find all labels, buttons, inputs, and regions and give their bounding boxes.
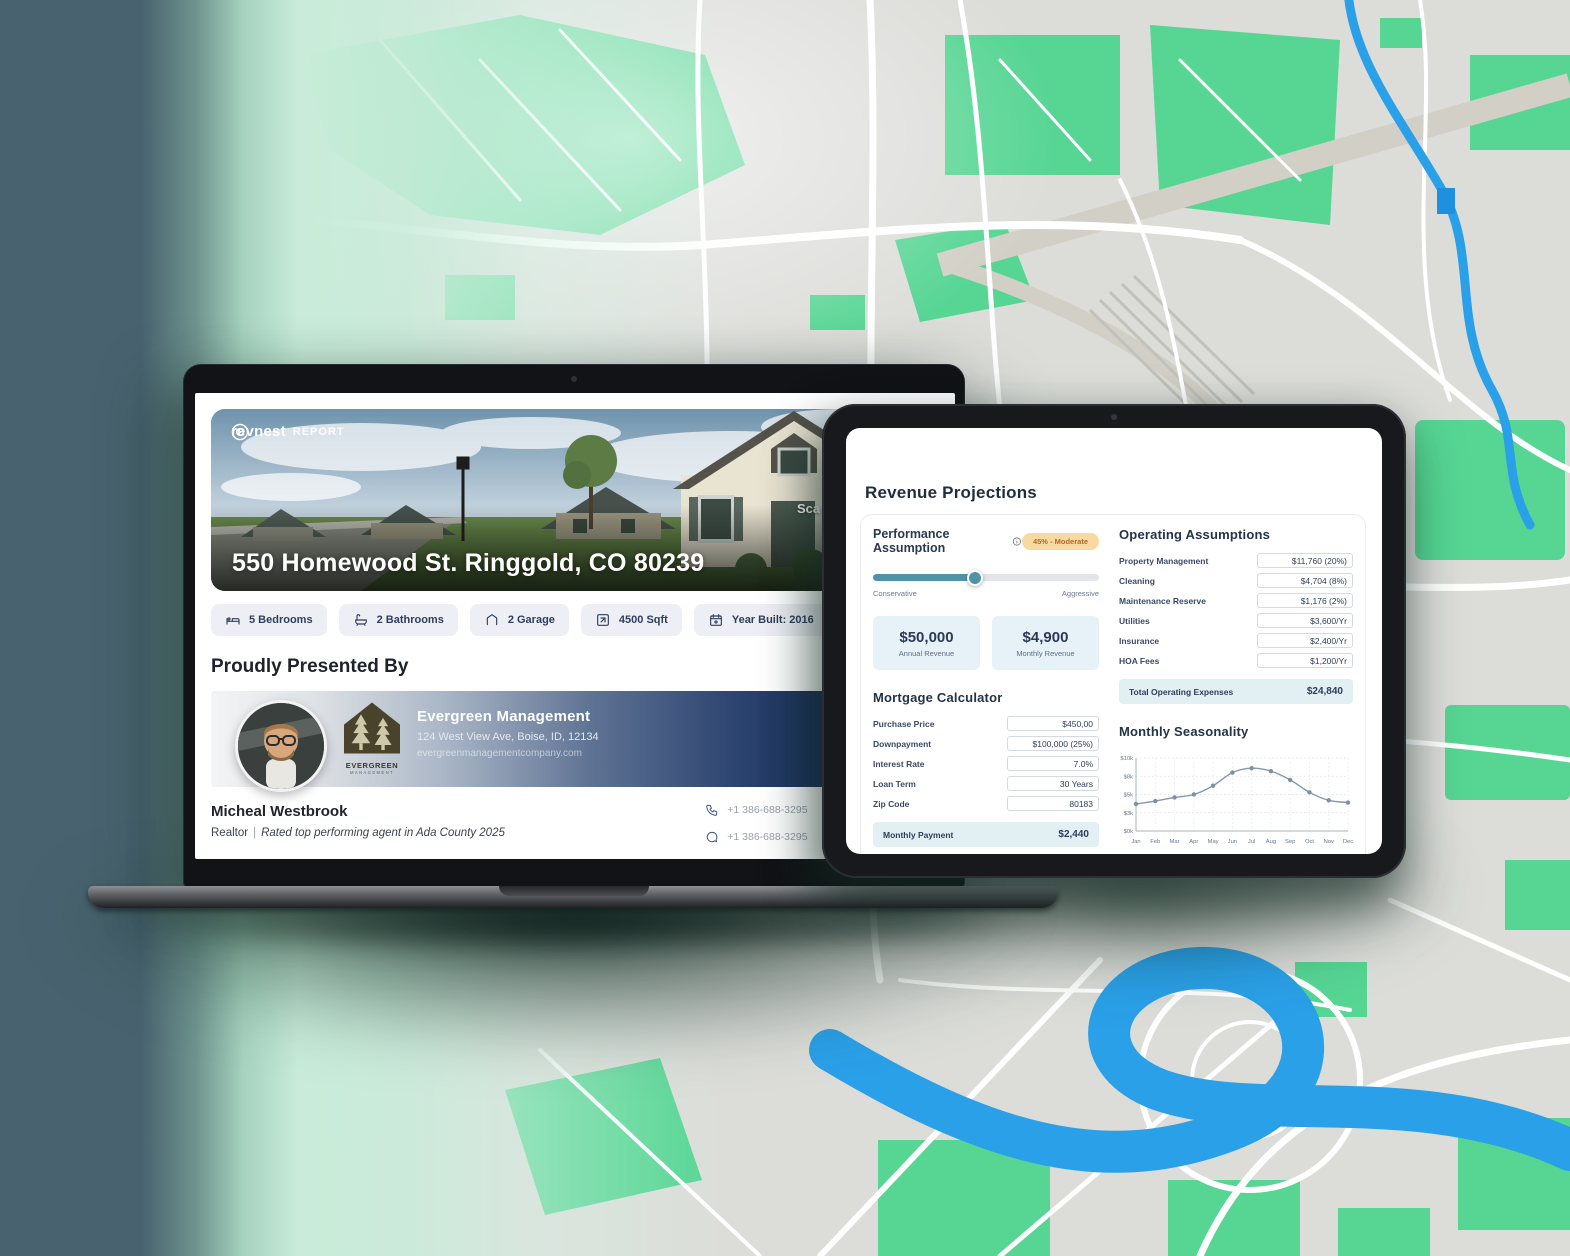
area-icon [595,612,611,628]
mortgage-title: Mortgage Calculator [873,690,1099,705]
expense-input[interactable]: $2,400/Yr [1257,633,1353,648]
evergreen-logo: EVERGREEN MANAGEMENT [337,702,407,775]
svg-text:$10k: $10k [1120,756,1133,762]
bathrooms-badge: 2 Bathrooms [339,604,458,636]
realtor-identity: Micheal Westbrook Realtor|Rated top perf… [211,803,505,844]
svg-text:Oct: Oct [1305,839,1314,845]
marketing-composite: revnest REPORT Sca 550 Homewood St. Ring… [0,0,1570,1256]
svg-text:$0k: $0k [1124,829,1133,835]
agent-photo-illustration [238,703,324,789]
mortgage-row: Loan Term 30 Years [873,776,1099,791]
expense-input[interactable]: $11,760 (20%) [1257,553,1353,568]
monthly-payment-value: $2,440 [1058,829,1089,840]
realtor-name: Micheal Westbrook [211,803,505,820]
expense-input[interactable]: $4,704 (8%) [1257,573,1353,588]
expense-input[interactable]: $1,176 (2%) [1257,593,1353,608]
slider-thumb[interactable] [967,570,983,586]
mortgage-row: Interest Rate 7.0% [873,756,1099,771]
expense-label: HOA Fees [1119,656,1159,666]
bathtub-icon [353,612,369,628]
company-name: Evergreen Management [417,708,599,725]
company-info: Evergreen Management 124 West View Ave, … [417,708,599,759]
info-icon[interactable] [1012,536,1022,547]
phone-number: +1 386-688-3295 [727,804,807,816]
svg-text:Feb: Feb [1150,839,1160,845]
expense-label: Cleaning [1119,576,1155,586]
field-label: Downpayment [873,739,931,749]
phone-contact[interactable]: +1 386-688-3295 [705,803,807,817]
evergreen-logo-icon [344,702,400,754]
separator: | [248,827,261,839]
slider-fill [873,574,975,581]
svg-text:Jul: Jul [1248,839,1255,845]
garage-badge: 2 Garage [470,604,569,636]
svg-text:Sep: Sep [1285,839,1295,845]
calendar-icon [708,612,724,628]
total-expenses-label: Total Operating Expenses [1129,687,1233,697]
field-label: Purchase Price [873,719,934,729]
operating-row: Insurance $2,400/Yr [1119,633,1353,648]
monthly-payment-label: Monthly Payment [883,830,953,840]
laptop-base [88,886,1058,908]
field-label: Zip Code [873,799,909,809]
agent-avatar [235,700,327,792]
field-input[interactable]: $100,000 (25%) [1007,736,1099,751]
seasonality-chart: $0k$3k$5k$8k$10kJanFebMarAprMayJunJulAug… [1119,751,1353,852]
bedrooms-badge: 5 Bedrooms [211,604,327,636]
scan-text-partial: Sca [797,501,820,516]
phone-icon [705,803,719,817]
bed-icon [225,612,241,628]
laptop-camera-dot [571,376,577,382]
revenue-cards: $50,000 Annual Revenue $4,900 Monthly Re… [873,616,1099,670]
expense-input[interactable]: $1,200/Yr [1257,653,1353,668]
performance-header: Performance Assumption 45% - Moderate [873,527,1099,555]
field-input[interactable]: 7.0% [1007,756,1099,771]
seasonality-chart-svg: $0k$3k$5k$8k$10kJanFebMarAprMayJunJulAug… [1119,751,1353,847]
seasonality-title: Monthly Seasonality [1119,724,1353,739]
total-expenses-value: $24,840 [1307,686,1343,697]
performance-slider[interactable] [873,574,1099,581]
company-website[interactable]: evergreenmanagementcompany.com [417,748,599,759]
svg-text:May: May [1208,839,1219,845]
mortgage-rows: Purchase Price $450,00 Downpayment $100,… [873,716,1099,811]
svg-text:$5k: $5k [1124,793,1133,799]
mortgage-row: Purchase Price $450,00 [873,716,1099,731]
svg-text:Nov: Nov [1324,839,1334,845]
expense-label: Utilities [1119,616,1150,626]
svg-text:$3k: $3k [1124,811,1133,817]
performance-label-wrap: Performance Assumption [873,527,1022,555]
left-column: Performance Assumption 45% - Moderate Co… [873,527,1099,852]
revenue-projections-page: Revenue Projections Performance Assumpti… [846,428,1382,854]
badge-label: 4500 Sqft [619,614,668,626]
mortgage-row: Downpayment $100,000 (25%) [873,736,1099,751]
annual-revenue-label: Annual Revenue [899,649,954,658]
mortgage-row: Zip Code 80183 [873,796,1099,811]
company-address: 124 West View Ave, Boise, ID, 12134 [417,731,599,743]
total-expenses-row: Total Operating Expenses $24,840 [1119,679,1353,704]
sqft-badge: 4500 Sqft [581,604,682,636]
svg-text:Aug: Aug [1266,839,1276,845]
evergreen-logo-line2: MANAGEMENT [337,770,407,775]
svg-text:Mar: Mar [1170,839,1180,845]
svg-text:Jun: Jun [1228,839,1237,845]
slider-max-label: Aggressive [1062,589,1099,598]
badge-label: 5 Bedrooms [249,614,313,626]
year-built-badge: Year Built: 2016 [694,604,828,636]
expense-label: Maintenance Reserve [1119,596,1206,606]
svg-text:Apr: Apr [1189,839,1198,845]
svg-text:Jan: Jan [1131,839,1140,845]
right-column: Operating Assumptions Property Managemen… [1119,527,1353,852]
monthly-revenue-card: $4,900 Monthly Revenue [992,616,1099,670]
badge-label: Year Built: 2016 [732,614,814,626]
badge-label: 2 Bathrooms [377,614,444,626]
field-input[interactable]: $450,00 [1007,716,1099,731]
sms-number: +1 386-688-3295 [727,831,807,843]
operating-row: Maintenance Reserve $1,176 (2%) [1119,593,1353,608]
expense-input[interactable]: $3,600/Yr [1257,613,1353,628]
field-label: Loan Term [873,779,916,789]
monthly-revenue-label: Monthly Revenue [1016,649,1074,658]
badge-label: 2 Garage [508,614,555,626]
revnest-report-logo: revnest REPORT [231,423,345,440]
projections-card: Performance Assumption 45% - Moderate Co… [860,514,1366,854]
sms-contact[interactable]: +1 386-688-3295 [705,830,807,844]
laptop-base-notch [499,886,649,896]
assumption-badge: 45% - Moderate [1022,533,1099,550]
expense-label: Property Management [1119,556,1208,566]
performance-label: Performance Assumption [873,527,1007,555]
monthly-revenue-value: $4,900 [1023,629,1069,646]
monthly-payment-row: Monthly Payment $2,440 [873,822,1099,847]
operating-row: Property Management $11,760 (20%) [1119,553,1353,568]
evergreen-logo-line1: EVERGREEN [337,761,407,770]
svg-text:$8k: $8k [1124,774,1133,780]
page-title: Revenue Projections [865,483,1037,503]
operating-row: Utilities $3,600/Yr [1119,613,1353,628]
operating-row: HOA Fees $1,200/Yr [1119,653,1353,668]
annual-revenue-card: $50,000 Annual Revenue [873,616,980,670]
garage-icon [484,612,500,628]
tablet-camera-dot [1111,414,1117,420]
field-label: Interest Rate [873,759,925,769]
field-input[interactable]: 30 Years [1007,776,1099,791]
svg-text:Dec: Dec [1343,839,1353,845]
expense-label: Insurance [1119,636,1159,646]
operating-row: Cleaning $4,704 (8%) [1119,573,1353,588]
realtor-subtitle: Realtor|Rated top performing agent in Ad… [211,827,505,839]
field-input[interactable]: 80183 [1007,796,1099,811]
property-address: 550 Homewood St. Ringgold, CO 80239 [232,549,704,578]
tablet-mockup: Revenue Projections Performance Assumpti… [822,404,1406,878]
contact-col-phone: +1 386-688-3295 +1 386-688-3295 [705,803,807,844]
chat-icon [705,830,719,844]
operating-rows: Property Management $11,760 (20%) Cleani… [1119,553,1353,668]
operating-title: Operating Assumptions [1119,527,1353,542]
slider-min-label: Conservative [873,589,917,598]
slider-range-labels: Conservative Aggressive [873,589,1099,598]
annual-revenue-value: $50,000 [899,629,953,646]
brand-suffix: REPORT [293,426,345,438]
realtor-role: Realtor [211,827,248,839]
revnest-logo-icon [231,423,249,441]
realtor-tagline: Rated top performing agent in Ada County… [261,827,505,839]
